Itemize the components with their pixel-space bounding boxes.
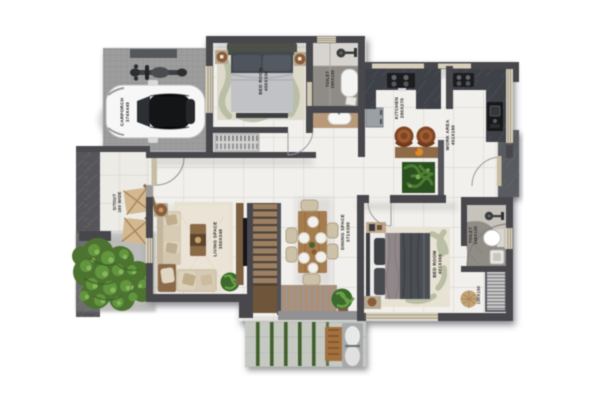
svg-text:374X449: 374X449 — [125, 102, 130, 122]
svg-text:BED ROOM: BED ROOM — [258, 67, 263, 94]
svg-text:451X180: 451X180 — [451, 125, 456, 145]
svg-text:DINING SPACE: DINING SPACE — [340, 214, 345, 250]
svg-text:350X348: 350X348 — [218, 229, 223, 249]
svg-text:371X390: 371X390 — [346, 222, 351, 242]
svg-text:150X150: 150X150 — [476, 285, 481, 304]
svg-text:BED ROOM: BED ROOM — [432, 250, 437, 277]
svg-text:401X360: 401X360 — [438, 254, 443, 274]
svg-text:290X150: 290X150 — [330, 69, 335, 88]
svg-text:CARPORCH: CARPORCH — [120, 97, 125, 126]
svg-text:280X270: 280X270 — [400, 98, 405, 118]
svg-text:KITCHEN: KITCHEN — [394, 96, 399, 119]
svg-text:400X336: 400X336 — [264, 71, 269, 91]
svg-text:246X150: 246X150 — [473, 225, 478, 244]
svg-text:WORK AREA: WORK AREA — [445, 119, 450, 150]
svg-text:LIVING SPACE: LIVING SPACE — [213, 221, 218, 256]
svg-text:160 WIDE: 160 WIDE — [117, 191, 122, 212]
